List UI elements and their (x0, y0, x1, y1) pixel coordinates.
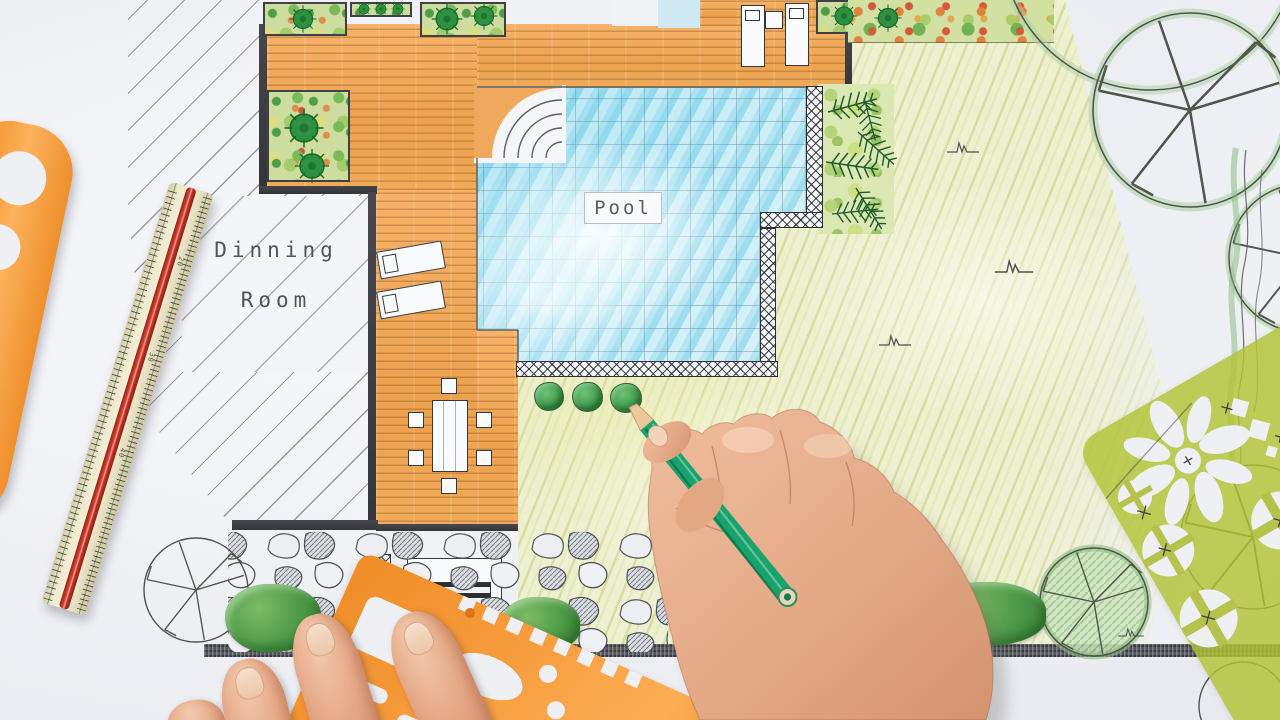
knuckle-highlight-1 (722, 427, 774, 453)
knuckle-highlight-2 (804, 434, 852, 458)
photo-canvas: Dinning Room Pool (0, 0, 1280, 720)
right-hand-with-pencil (0, 0, 1280, 720)
pencil-butt-core (784, 593, 791, 600)
